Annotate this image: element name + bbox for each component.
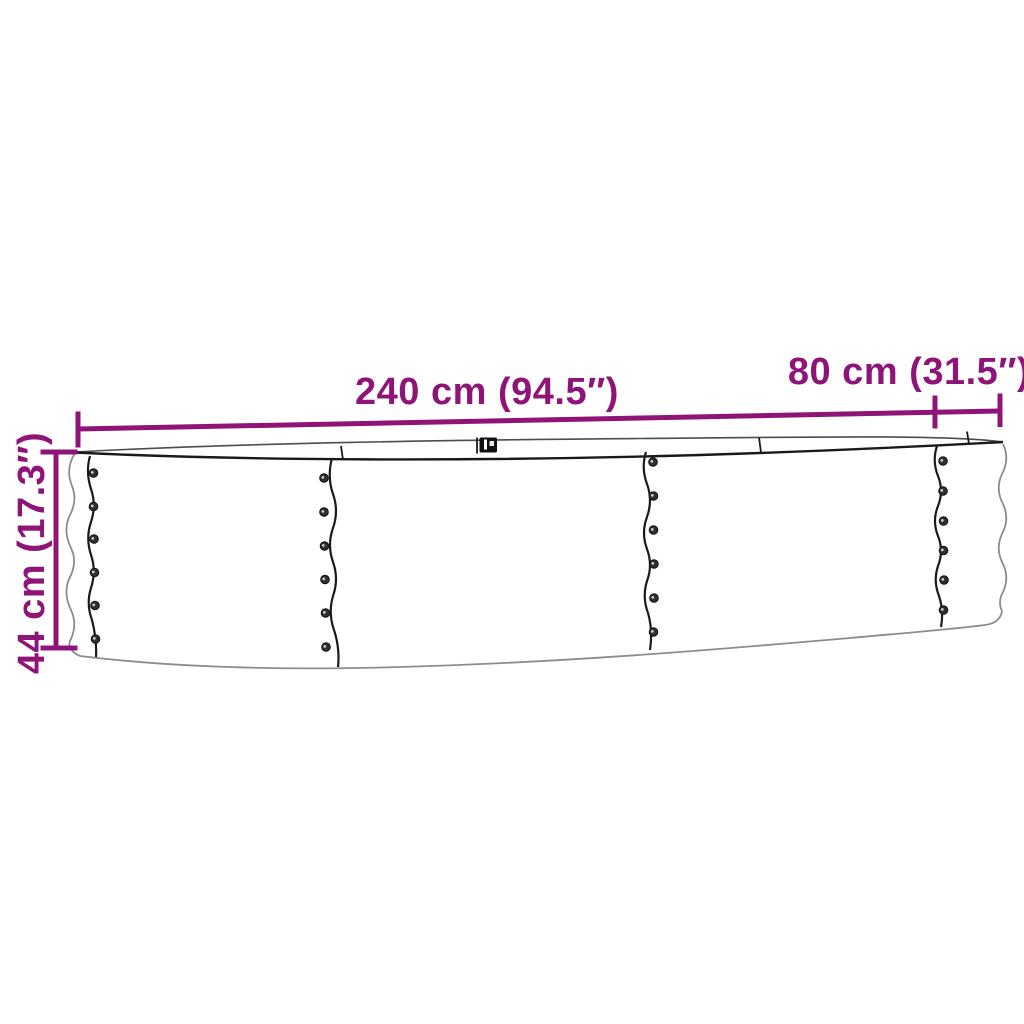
panel-seam-3 <box>644 452 651 650</box>
rivet <box>939 606 948 615</box>
rim-connector-clip <box>480 438 498 453</box>
rivet <box>649 526 658 535</box>
rivet <box>940 576 949 585</box>
rivet <box>89 502 98 511</box>
product-dimension-diagram: 240 cm (94.5″) 80 cm (31.5″) 44 cm (17.3… <box>0 0 1024 1024</box>
left-corrugated-edge <box>66 453 80 656</box>
length-dimension-label: 240 cm (94.5″) <box>355 371 619 413</box>
raised-bed-drawing <box>66 432 1006 669</box>
height-dimension-label: 44 cm (17.3″) <box>11 432 53 674</box>
rivet <box>91 635 100 644</box>
rivet <box>322 643 331 652</box>
rivet <box>939 487 948 496</box>
rivet <box>650 560 659 569</box>
panel-seam-4 <box>935 446 942 627</box>
length-dimension-line <box>78 411 1000 429</box>
rivet <box>939 517 948 526</box>
rivet-column-3 <box>649 458 659 637</box>
rivet <box>939 457 948 466</box>
depth-dimension-label: 80 cm (31.5″) <box>788 351 1024 393</box>
rim-joint <box>967 432 969 445</box>
rivet <box>91 601 100 610</box>
rivet <box>649 492 658 501</box>
rivet <box>320 474 329 483</box>
rivet <box>939 546 948 555</box>
rivet <box>90 535 99 544</box>
rivet-column-2 <box>320 474 331 652</box>
rivet <box>321 609 330 618</box>
right-corrugated-edge <box>999 444 1007 611</box>
panel-seam-1 <box>88 456 96 657</box>
panel-seam-2 <box>330 458 339 667</box>
rivet <box>320 542 329 551</box>
rivet <box>321 575 330 584</box>
rivet <box>649 628 658 637</box>
rivet <box>650 594 659 603</box>
rim-front-edge <box>75 442 1003 459</box>
rivet <box>90 568 99 577</box>
diagram-svg: 240 cm (94.5″) 80 cm (31.5″) 44 cm (17.3… <box>0 0 1024 1024</box>
bottom-edge <box>80 611 1002 668</box>
rivet <box>649 458 658 467</box>
rim-joint <box>759 438 761 453</box>
rivet <box>89 469 98 478</box>
rim-joint <box>341 446 343 460</box>
height-dimension: 44 cm (17.3″) <box>11 432 78 674</box>
depth-dimension: 80 cm (31.5″) <box>788 351 1024 393</box>
rivet <box>320 508 329 517</box>
